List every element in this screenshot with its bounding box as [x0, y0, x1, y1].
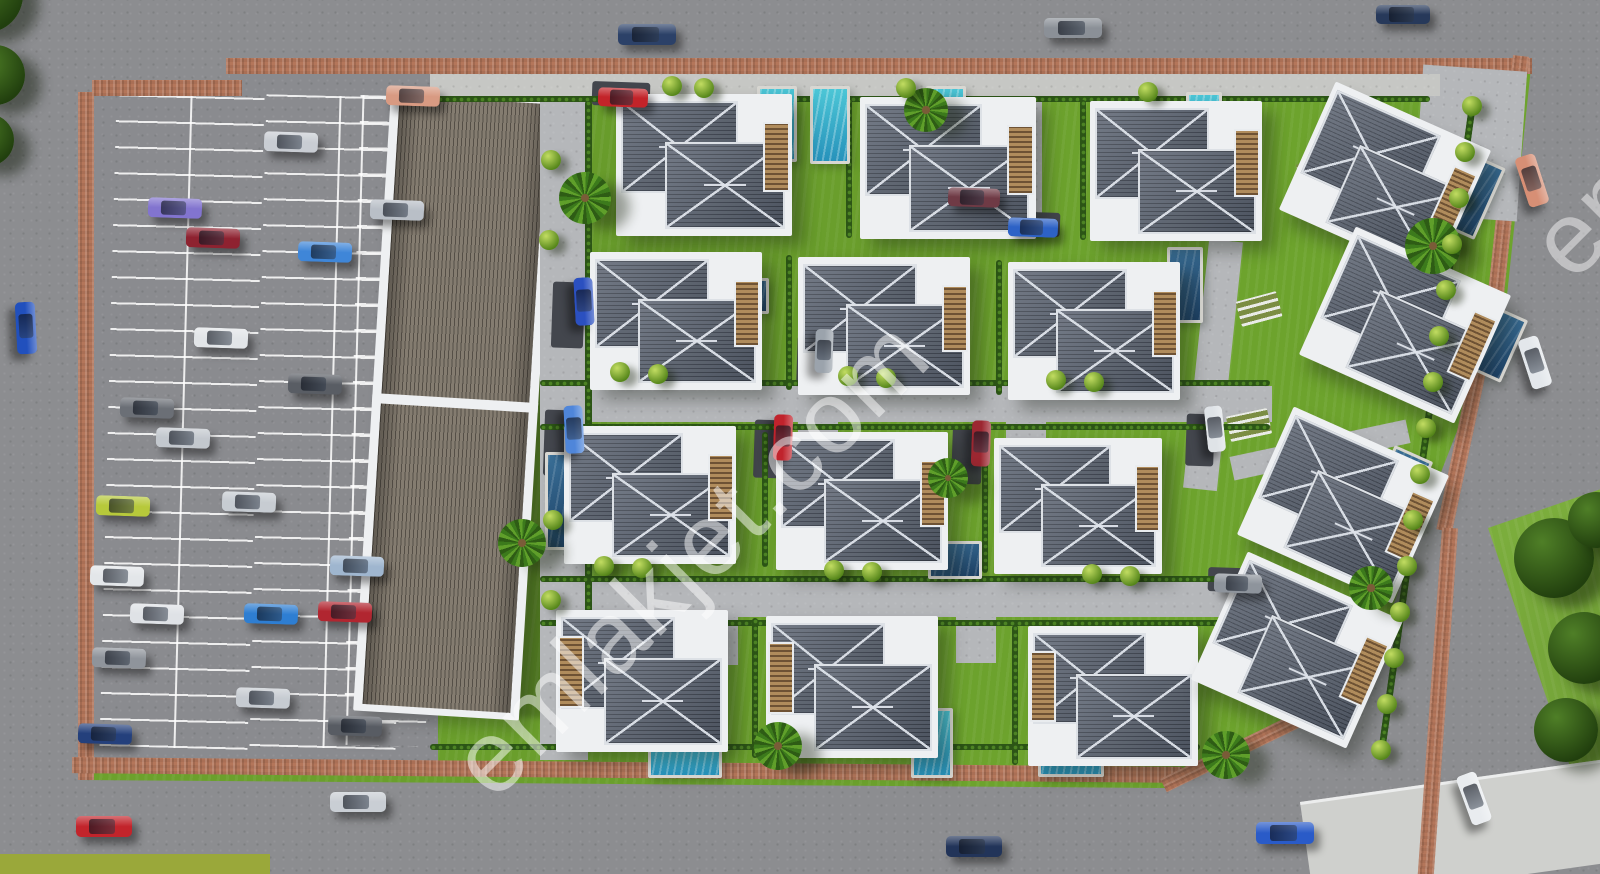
car-windshield	[1389, 7, 1414, 21]
bush	[1416, 418, 1436, 438]
palm-tree	[498, 519, 546, 567]
car	[330, 792, 386, 812]
car	[90, 565, 145, 587]
pergola-roof	[734, 280, 760, 347]
car-windshield	[1462, 783, 1485, 811]
bush	[824, 560, 844, 580]
car	[1214, 573, 1263, 594]
bush	[1436, 280, 1456, 300]
car	[563, 405, 584, 454]
car	[1455, 770, 1493, 826]
palm-tree	[1349, 566, 1393, 610]
bush	[632, 558, 652, 578]
car	[1256, 822, 1314, 844]
car	[1008, 217, 1059, 238]
bush	[1377, 694, 1397, 714]
car-windshield	[105, 650, 130, 666]
car	[194, 327, 249, 349]
villa-building	[994, 438, 1162, 574]
tree	[1548, 612, 1600, 684]
car-windshield	[103, 568, 128, 584]
villa-building	[1090, 101, 1262, 241]
car-windshield	[974, 431, 989, 453]
car-windshield	[341, 718, 366, 734]
car	[156, 427, 211, 449]
car-windshield	[311, 244, 336, 260]
car-windshield	[1520, 165, 1542, 193]
car	[598, 87, 649, 108]
car-windshield	[169, 430, 194, 446]
car-windshield	[576, 289, 591, 312]
bush	[838, 366, 858, 386]
car	[120, 397, 175, 419]
car	[244, 603, 299, 625]
car	[946, 836, 1002, 857]
car-windshield	[161, 200, 186, 216]
villa-building	[564, 426, 736, 564]
bush	[1390, 602, 1410, 622]
car	[814, 329, 834, 374]
pergola-roof	[763, 122, 790, 191]
hedge-row	[540, 576, 1270, 582]
car	[573, 277, 594, 326]
car	[15, 302, 38, 355]
bush	[1423, 372, 1443, 392]
bush	[896, 78, 916, 98]
bush	[539, 230, 559, 250]
car	[318, 601, 373, 623]
car-windshield	[235, 494, 260, 510]
bush	[1462, 96, 1482, 116]
car-windshield	[399, 88, 424, 104]
car-windshield	[776, 425, 791, 447]
car-windshield	[109, 498, 134, 514]
car	[186, 227, 241, 249]
bush	[1449, 188, 1469, 208]
villa-building	[556, 610, 728, 752]
car-windshield	[1207, 416, 1222, 438]
car	[96, 495, 151, 517]
bush	[1046, 370, 1066, 390]
villa-building	[1028, 626, 1198, 766]
hedge-row	[996, 260, 1002, 395]
tree	[0, 45, 25, 105]
bush	[1138, 82, 1158, 102]
hedge-row	[1080, 100, 1086, 240]
tree	[1534, 698, 1598, 762]
pergola-roof	[1152, 290, 1178, 357]
bush	[694, 78, 714, 98]
car-windshield	[249, 690, 274, 706]
tree	[0, 114, 14, 166]
bush	[662, 76, 682, 96]
car-windshield	[301, 376, 326, 392]
villa-building	[776, 432, 948, 570]
villa-roof-wing	[814, 664, 932, 750]
bush	[543, 510, 563, 530]
car-windshield	[133, 400, 158, 416]
car-windshield	[277, 134, 302, 150]
hedge-row	[762, 432, 768, 567]
car-windshield	[1020, 220, 1043, 235]
car	[264, 131, 319, 153]
car	[971, 420, 992, 467]
scene-objects	[0, 0, 1600, 874]
palm-tree	[559, 172, 611, 224]
pergola-roof	[1030, 651, 1056, 722]
car	[92, 647, 147, 669]
car-windshield	[257, 606, 282, 622]
car	[618, 24, 676, 45]
palm-tree	[1202, 731, 1250, 779]
car-windshield	[383, 202, 408, 218]
car	[1044, 18, 1102, 38]
bush	[1429, 326, 1449, 346]
car	[222, 491, 277, 513]
bush	[610, 362, 630, 382]
car-windshield	[331, 604, 356, 620]
bush	[876, 368, 896, 388]
car-windshield	[817, 339, 831, 360]
tree	[0, 0, 23, 33]
car-windshield	[959, 839, 985, 855]
car-windshield	[343, 795, 369, 810]
bush	[1371, 740, 1391, 760]
car	[288, 373, 343, 395]
car-windshield	[960, 190, 984, 205]
car-windshield	[18, 314, 34, 339]
car-windshield	[610, 90, 633, 105]
car	[298, 241, 353, 263]
hedge-row	[786, 255, 792, 390]
car-windshield	[143, 606, 168, 622]
car	[76, 816, 132, 837]
pergola-roof	[1135, 465, 1161, 532]
villa-building	[1299, 226, 1511, 423]
site-plan-render: emlakjet.com emlakjet.com	[0, 0, 1600, 874]
car-windshield	[632, 27, 659, 43]
villa-roof-wing	[1076, 674, 1192, 759]
hedge-row	[1012, 625, 1018, 765]
pergola-roof	[1007, 125, 1034, 194]
car	[328, 715, 383, 737]
bush	[1403, 510, 1423, 530]
car-windshield	[566, 417, 581, 440]
car	[1517, 335, 1553, 391]
car-windshield	[1225, 576, 1248, 591]
bush	[541, 590, 561, 610]
bush	[1397, 556, 1417, 576]
palm-tree	[754, 722, 802, 770]
car-windshield	[89, 819, 115, 835]
car	[1376, 5, 1430, 24]
bush	[862, 562, 882, 582]
bush	[1082, 564, 1102, 584]
car	[948, 187, 1001, 208]
car-windshield	[91, 726, 116, 742]
car	[148, 197, 203, 219]
car-windshield	[1523, 347, 1545, 375]
bush	[1384, 648, 1404, 668]
pergola-roof	[942, 285, 968, 352]
car	[386, 85, 441, 107]
car	[773, 414, 794, 461]
car	[330, 555, 385, 577]
pergola-roof	[558, 636, 584, 708]
car-windshield	[1058, 21, 1085, 36]
bush	[594, 556, 614, 576]
bush	[1455, 142, 1475, 162]
bush	[1442, 234, 1462, 254]
car-windshield	[199, 230, 224, 246]
pergola-roof	[708, 454, 734, 521]
bush	[648, 364, 668, 384]
villa-roof-wing	[604, 658, 722, 744]
car	[236, 687, 291, 709]
bush	[1084, 372, 1104, 392]
bush	[1120, 566, 1140, 586]
car	[130, 603, 185, 625]
swimming-pool	[810, 86, 850, 164]
palm-tree	[928, 458, 968, 498]
car-windshield	[1270, 825, 1297, 841]
car	[370, 199, 425, 221]
bush	[1410, 464, 1430, 484]
garden-steps	[1235, 291, 1282, 327]
car-windshield	[207, 330, 232, 346]
bush	[541, 150, 561, 170]
car-windshield	[343, 558, 368, 574]
villa-building	[616, 94, 792, 236]
car	[78, 723, 133, 745]
pergola-roof	[768, 642, 794, 714]
pergola-roof	[1234, 129, 1260, 197]
